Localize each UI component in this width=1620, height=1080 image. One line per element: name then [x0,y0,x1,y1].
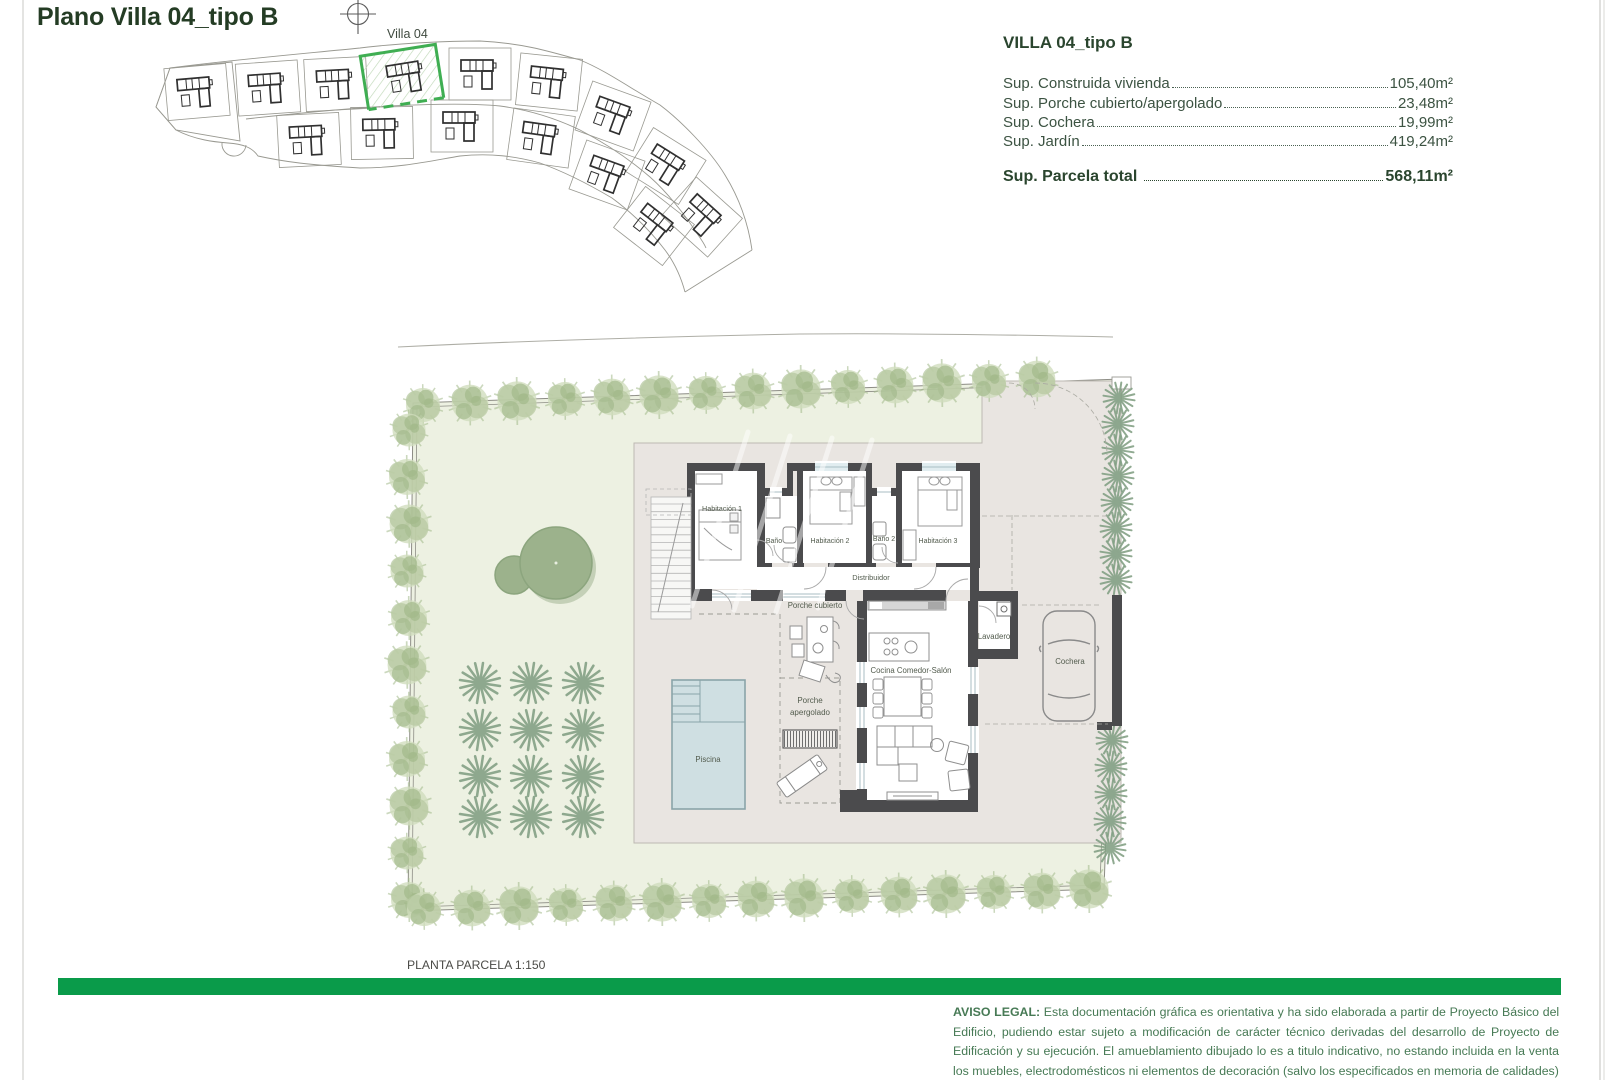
svg-text:Baño: Baño [766,538,782,545]
svg-text:Distribuidor: Distribuidor [852,573,890,582]
svg-text:Porche: Porche [797,696,823,705]
svg-text:apergolado: apergolado [790,708,831,717]
svg-text:Porche cubierto: Porche cubierto [788,601,843,610]
svg-text:Piscina: Piscina [695,755,721,764]
svg-text:Habitación 2: Habitación 2 [811,538,850,545]
svg-text:PLANTA PARCELA 1:150: PLANTA PARCELA 1:150 [407,958,546,972]
svg-text:Cochera: Cochera [1055,657,1085,666]
svg-text:Baño 2: Baño 2 [873,536,895,543]
svg-text:Habitación 3: Habitación 3 [919,538,958,545]
svg-text:Habitación 1: Habitación 1 [702,504,742,513]
svg-text:Cocina Comedor-Salón: Cocina Comedor-Salón [870,666,951,675]
svg-text:Villa 04: Villa 04 [387,27,428,41]
svg-text:Lavadero: Lavadero [978,632,1011,641]
